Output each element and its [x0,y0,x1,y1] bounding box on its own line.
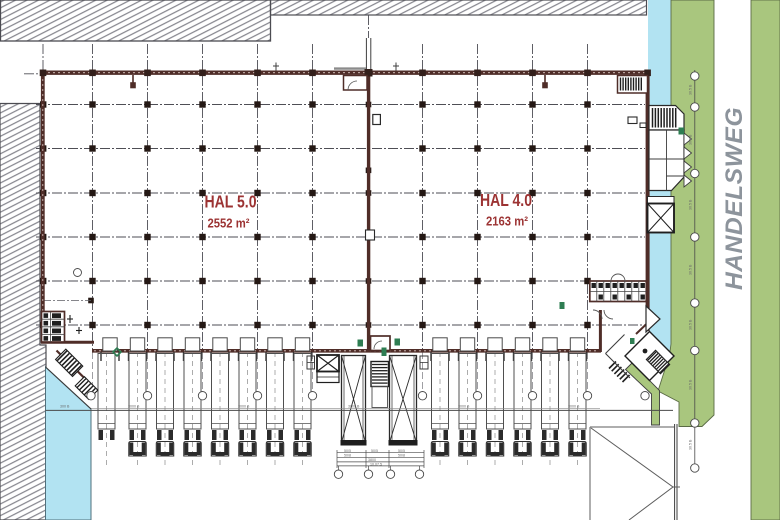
svg-text:50/8: 50/8 [344,453,351,457]
svg-text:2163 m²: 2163 m² [486,214,529,229]
svg-text:50/8: 50/8 [398,453,405,457]
svg-text:50/5: 50/5 [371,449,378,453]
svg-text:30.5 B: 30.5 B [689,319,693,330]
svg-text:10.07.5: 10.07.5 [370,462,382,466]
svg-text:30.5 B: 30.5 B [689,264,693,275]
svg-text:3000 B: 3000 B [128,404,140,408]
svg-text:30.5 B: 30.5 B [689,379,693,390]
svg-text:3800: 3800 [368,458,376,462]
svg-text:3000 B: 3000 B [238,404,250,408]
svg-text:3000 B: 3000 B [458,404,470,408]
svg-text:30.5 B: 30.5 B [689,199,693,210]
svg-text:3000 B: 3000 B [568,404,580,408]
svg-text:30.5 B: 30.5 B [689,439,693,450]
svg-text:300 B: 300 B [60,404,70,408]
svg-text:30.5 B: 30.5 B [689,84,693,95]
svg-text:50/5: 50/5 [344,449,351,453]
svg-text:3000 B: 3000 B [348,404,360,408]
svg-text:30.5 B: 30.5 B [689,134,693,145]
svg-text:HANDELSWEG: HANDELSWEG [721,107,748,290]
svg-text:50/5: 50/5 [398,449,405,453]
svg-text:HAL 5.0: HAL 5.0 [205,192,257,212]
svg-text:HAL 4.0: HAL 4.0 [480,190,532,210]
svg-text:2552 m²: 2552 m² [208,216,251,231]
